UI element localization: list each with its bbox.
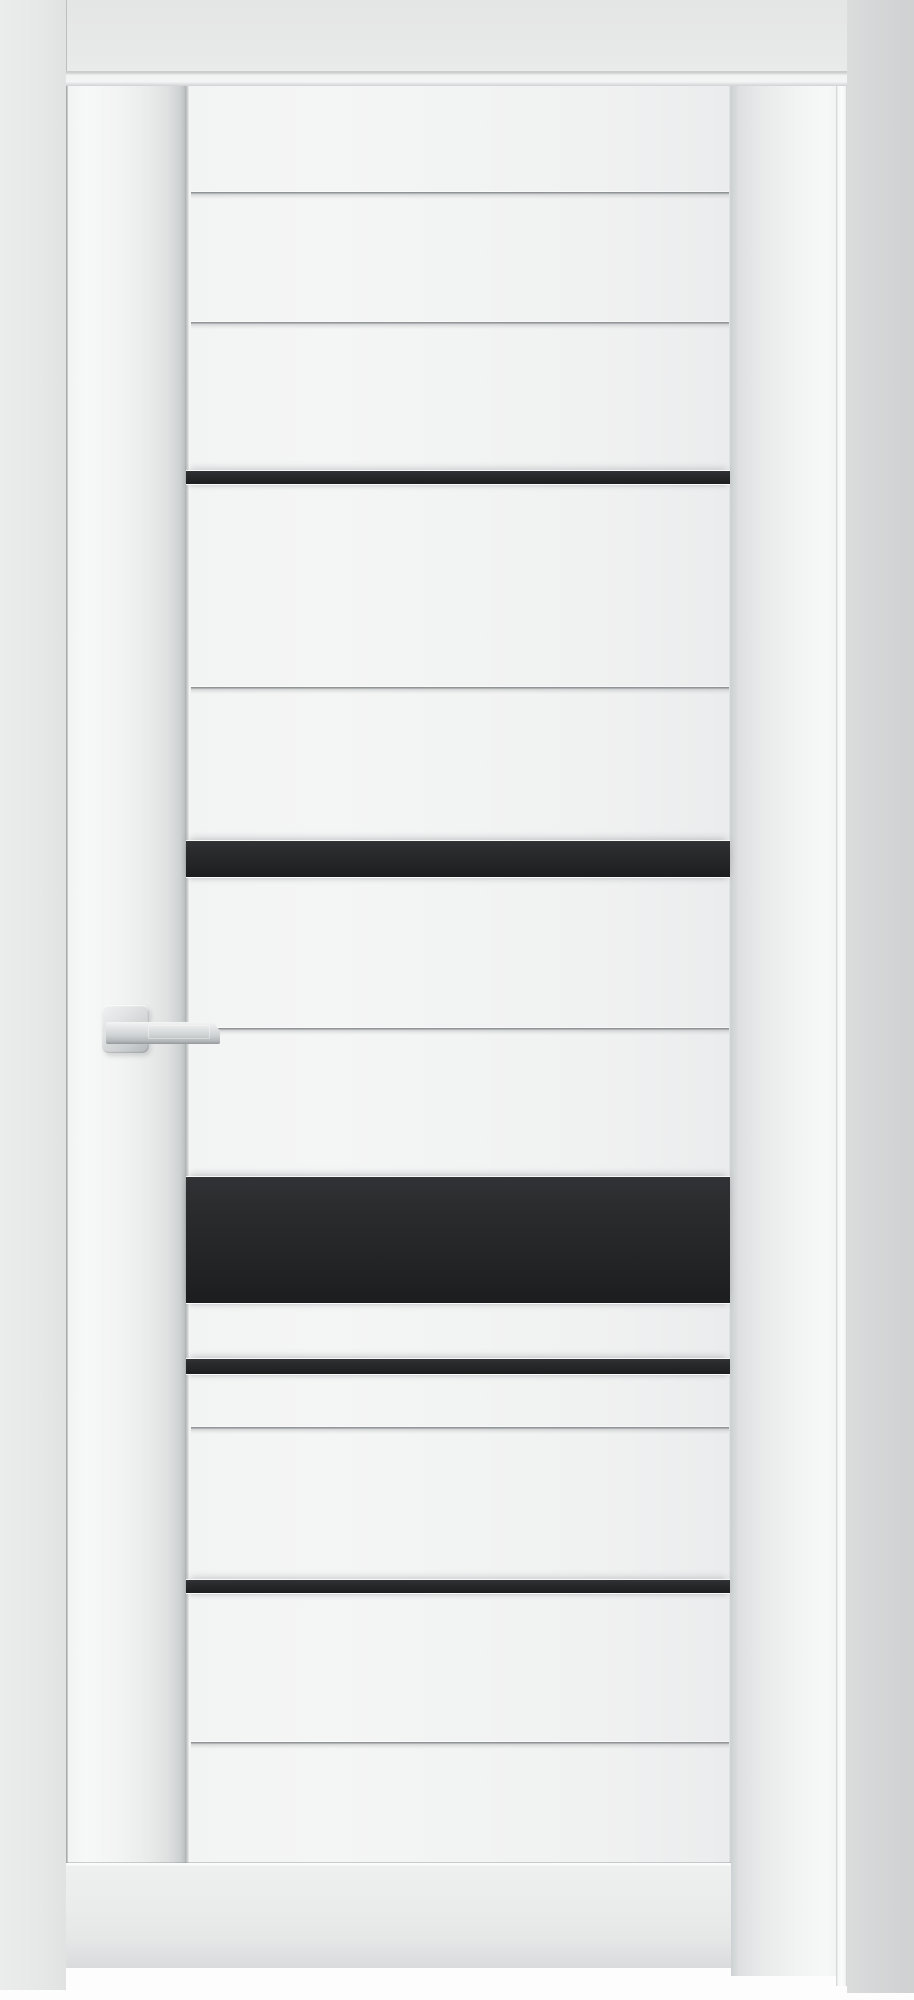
black-glass-insert bbox=[186, 471, 730, 484]
door-right-edge-seam bbox=[729, 86, 731, 1968]
door-frame-casing-edge bbox=[836, 86, 847, 1986]
black-glass-insert bbox=[186, 1177, 730, 1303]
milled-groove bbox=[191, 1427, 729, 1434]
milled-groove bbox=[191, 1742, 729, 1749]
wall-right bbox=[847, 0, 914, 1993]
black-glass-insert bbox=[186, 1359, 730, 1374]
milled-groove bbox=[191, 1028, 729, 1035]
door-product-photo: Product photo: closed white interior doo… bbox=[0, 0, 914, 2000]
black-glass-insert bbox=[186, 1580, 730, 1593]
milled-groove bbox=[191, 687, 729, 694]
milled-groove bbox=[191, 192, 729, 199]
wall-left bbox=[0, 0, 66, 1990]
door-frame-head-jamb bbox=[66, 71, 847, 86]
door-handle-lever bbox=[106, 1022, 220, 1044]
milled-groove bbox=[191, 322, 729, 329]
door-frame-right-jamb bbox=[731, 86, 836, 1976]
door-left-edge-seam bbox=[66, 86, 68, 1968]
door-leaf bbox=[66, 86, 731, 1968]
wall-above-doorway bbox=[66, 0, 848, 72]
door-bottom-rail bbox=[66, 1863, 731, 1968]
black-glass-insert bbox=[186, 841, 730, 877]
